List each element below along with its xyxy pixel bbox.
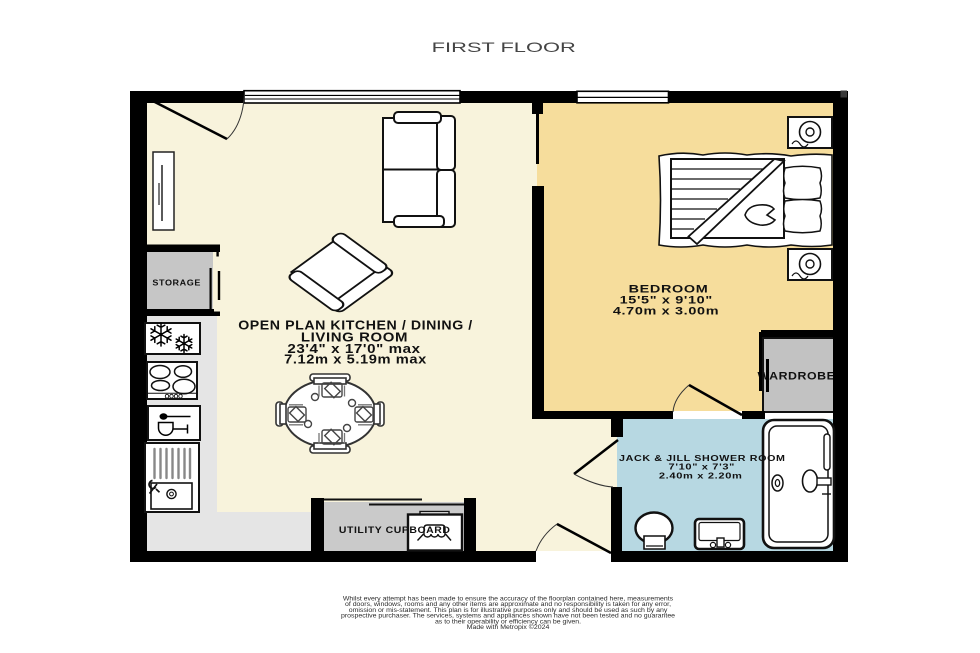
svg-text:7'10" x 7'3": 7'10" x 7'3" <box>669 462 736 471</box>
svg-text:4.70m x 3.00m: 4.70m x 3.00m <box>613 304 719 317</box>
svg-text:FIRST FLOOR: FIRST FLOOR <box>432 40 576 55</box>
svg-text:WARDROBE: WARDROBE <box>758 370 836 382</box>
svg-text:2.40m x 2.20m: 2.40m x 2.20m <box>659 471 743 480</box>
svg-text:Made with Metropix ©2024: Made with Metropix ©2024 <box>467 623 550 631</box>
svg-text:UTILITY CUPBOARD: UTILITY CUPBOARD <box>339 525 451 535</box>
svg-text:7.12m x 5.19m max: 7.12m x 5.19m max <box>284 352 427 366</box>
svg-text:STORAGE: STORAGE <box>152 278 201 287</box>
